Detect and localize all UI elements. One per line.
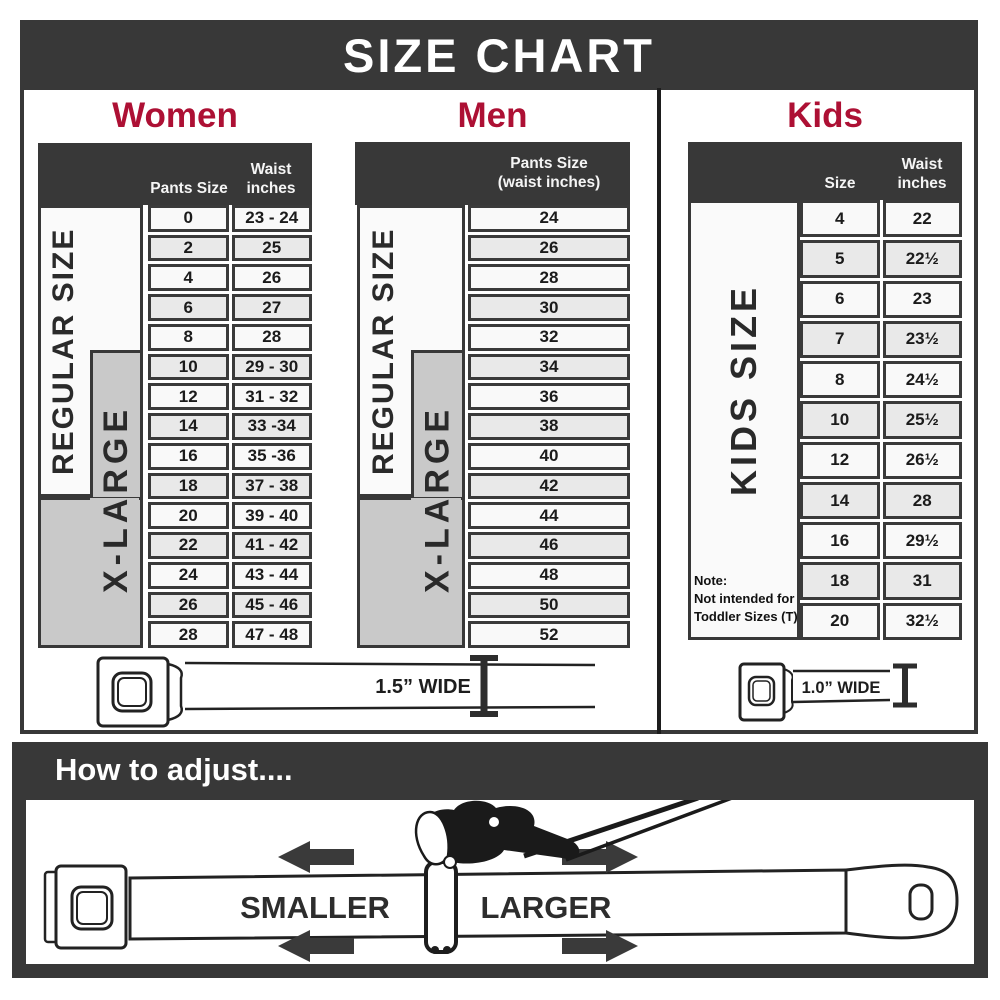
waist-cell: 29 - 30 [232, 354, 313, 381]
table-row: 1231 - 32 [148, 383, 312, 410]
size-cell: 12 [800, 442, 880, 479]
table-row: 36 [468, 383, 630, 410]
table-row: 623 [800, 281, 962, 318]
size-cell: 14 [800, 482, 880, 519]
size-cell: 20 [148, 502, 229, 529]
table-row: 824½ [800, 361, 962, 398]
table-row: 2645 - 46 [148, 592, 312, 619]
how-to-adjust-title: How to adjust.... [55, 752, 293, 788]
size-chart-sheet: SIZE CHART Women Pants Size Waist inches… [0, 0, 1000, 1000]
table-row: 1226½ [800, 442, 962, 479]
waist-cell: 29½ [883, 522, 963, 559]
smaller-label: SMALLER [240, 890, 390, 925]
size-cell: 28 [148, 621, 229, 648]
seatbelt-buckle-icon [45, 866, 126, 948]
waist-cell: 31 [883, 562, 963, 599]
size-cell: 10 [800, 401, 880, 438]
waist-cell: 35 -36 [232, 443, 313, 470]
table-row: 723½ [800, 321, 962, 358]
waist-cell: 45 - 46 [232, 592, 313, 619]
waist-cell: 50 [468, 592, 630, 619]
table-row: 34 [468, 354, 630, 381]
table-row: 46 [468, 532, 630, 559]
waist-cell: 24 [468, 205, 630, 232]
waist-cell: 34 [468, 354, 630, 381]
table-row: 1831 [800, 562, 962, 599]
women-title: Women [38, 94, 312, 138]
women-col-waist: Waist inches [230, 160, 312, 198]
table-row: 52 [468, 621, 630, 648]
waist-cell: 31 - 32 [232, 383, 313, 410]
size-cell: 14 [148, 413, 229, 440]
table-row: 2847 - 48 [148, 621, 312, 648]
waist-cell: 43 - 44 [232, 562, 313, 589]
waist-cell: 40 [468, 443, 630, 470]
width-measure-icon [893, 666, 917, 705]
waist-cell: 37 - 38 [232, 473, 313, 500]
waist-cell: 26½ [883, 442, 963, 479]
waist-cell: 28 [883, 482, 963, 519]
larger-label: LARGER [481, 890, 612, 925]
waist-cell: 33 -34 [232, 413, 313, 440]
men-col-pants-size: Pants Size (waist inches) [468, 154, 630, 192]
kids-col-waist: Waist inches [882, 155, 962, 193]
size-cell: 26 [148, 592, 229, 619]
size-cell: 16 [800, 522, 880, 559]
women-table-header: Pants Size Waist inches [38, 143, 312, 205]
waist-cell: 22½ [883, 240, 963, 277]
waist-cell: 36 [468, 383, 630, 410]
men-size-table: 242628303234363840424446485052 [468, 205, 630, 648]
table-row: 24 [468, 205, 630, 232]
waist-cell: 30 [468, 294, 630, 321]
table-row: 1837 - 38 [148, 473, 312, 500]
table-row: 40 [468, 443, 630, 470]
table-row: 627 [148, 294, 312, 321]
waist-cell: 22 [883, 200, 963, 237]
waist-cell: 46 [468, 532, 630, 559]
table-row: 522½ [800, 240, 962, 277]
table-row: 023 - 24 [148, 205, 312, 232]
waist-cell: 48 [468, 562, 630, 589]
men-table-header: Pants Size (waist inches) [355, 142, 630, 205]
table-row: 1433 -34 [148, 413, 312, 440]
table-row: 1629½ [800, 522, 962, 559]
size-cell: 6 [800, 281, 880, 318]
size-cell: 7 [800, 321, 880, 358]
adult-belt-illustration: 1.5” WIDE [93, 648, 653, 736]
waist-cell: 28 [468, 264, 630, 291]
size-cell: 8 [148, 324, 229, 351]
size-cell: 4 [800, 200, 880, 237]
table-row: 2443 - 44 [148, 562, 312, 589]
table-row: 44 [468, 502, 630, 529]
kids-col-size: Size [800, 174, 880, 193]
table-row: 1428 [800, 482, 962, 519]
waist-cell: 52 [468, 621, 630, 648]
men-title: Men [355, 94, 630, 138]
table-row: 2241 - 42 [148, 532, 312, 559]
waist-cell: 23½ [883, 321, 963, 358]
size-cell: 24 [148, 562, 229, 589]
how-to-adjust-section: How to adjust.... [12, 742, 988, 978]
waist-cell: 23 [883, 281, 963, 318]
table-row: 1635 -36 [148, 443, 312, 470]
waist-cell: 26 [468, 235, 630, 262]
waist-cell: 23 - 24 [232, 205, 313, 232]
table-row: 42 [468, 473, 630, 500]
waist-cell: 27 [232, 294, 313, 321]
waist-cell: 24½ [883, 361, 963, 398]
waist-cell: 25½ [883, 401, 963, 438]
kids-title: Kids [688, 94, 962, 138]
men-xlarge-label: X-LARGE [411, 350, 465, 648]
table-row: 225 [148, 235, 312, 262]
kids-belt-illustration: 1.0” WIDE [733, 650, 973, 730]
table-row: 26 [468, 235, 630, 262]
waist-cell: 44 [468, 502, 630, 529]
belt-adjuster [426, 862, 456, 954]
table-row: 38 [468, 413, 630, 440]
waist-cell: 47 - 48 [232, 621, 313, 648]
table-row: 48 [468, 562, 630, 589]
kids-size-table: 422522½623723½824½1025½1226½14281629½183… [800, 200, 962, 640]
hand-illustration [416, 800, 732, 868]
waist-cell: 32½ [883, 603, 963, 640]
how-to-adjust-canvas: SMALLER LARGER [26, 800, 974, 964]
size-cell: 5 [800, 240, 880, 277]
waist-cell: 26 [232, 264, 313, 291]
women-regular-size-label: REGULAR SIZE [38, 205, 90, 497]
waist-cell: 38 [468, 413, 630, 440]
table-row: 1025½ [800, 401, 962, 438]
kids-belt-width-label: 1.0” WIDE [802, 679, 881, 697]
size-cell: 10 [148, 354, 229, 381]
women-xlarge-label: X-LARGE [90, 350, 143, 648]
sheet-title-bar: SIZE CHART [20, 20, 978, 90]
kids-size-label: KIDS SIZE [688, 200, 800, 580]
table-row: 426 [148, 264, 312, 291]
size-cell: 18 [800, 562, 880, 599]
table-row: 28 [468, 264, 630, 291]
size-cell: 12 [148, 383, 229, 410]
waist-cell: 25 [232, 235, 313, 262]
table-row: 2039 - 40 [148, 502, 312, 529]
waist-cell: 28 [232, 324, 313, 351]
seatbelt-buckle-icon [98, 658, 182, 726]
size-cell: 4 [148, 264, 229, 291]
size-cell: 20 [800, 603, 880, 640]
adjust-belt-illustration: SMALLER LARGER [26, 800, 974, 964]
waist-cell: 39 - 40 [232, 502, 313, 529]
panel-divider [657, 88, 661, 734]
kids-table-header: Size Waist inches [688, 142, 962, 200]
sheet-title: SIZE CHART [343, 28, 655, 83]
waist-cell: 42 [468, 473, 630, 500]
table-row: 422 [800, 200, 962, 237]
size-cell: 2 [148, 235, 229, 262]
table-row: 50 [468, 592, 630, 619]
men-regular-size-label: REGULAR SIZE [357, 205, 411, 497]
kids-note: Note: Not intended for Toddler Sizes (T) [694, 572, 798, 626]
size-cell: 8 [800, 361, 880, 398]
table-row: 1029 - 30 [148, 354, 312, 381]
women-size-table: 023 - 242254266278281029 - 301231 - 3214… [148, 205, 312, 648]
adult-belt-width-label: 1.5” WIDE [375, 676, 471, 698]
table-row: 30 [468, 294, 630, 321]
seatbelt-buckle-icon [740, 664, 793, 720]
table-row: 32 [468, 324, 630, 351]
size-cell: 6 [148, 294, 229, 321]
size-cell: 16 [148, 443, 229, 470]
size-cell: 0 [148, 205, 229, 232]
waist-cell: 32 [468, 324, 630, 351]
women-col-pants-size: Pants Size [148, 179, 230, 198]
size-cell: 18 [148, 473, 229, 500]
table-row: 2032½ [800, 603, 962, 640]
size-cell: 22 [148, 532, 229, 559]
belt-tip [846, 865, 957, 938]
waist-cell: 41 - 42 [232, 532, 313, 559]
table-row: 828 [148, 324, 312, 351]
